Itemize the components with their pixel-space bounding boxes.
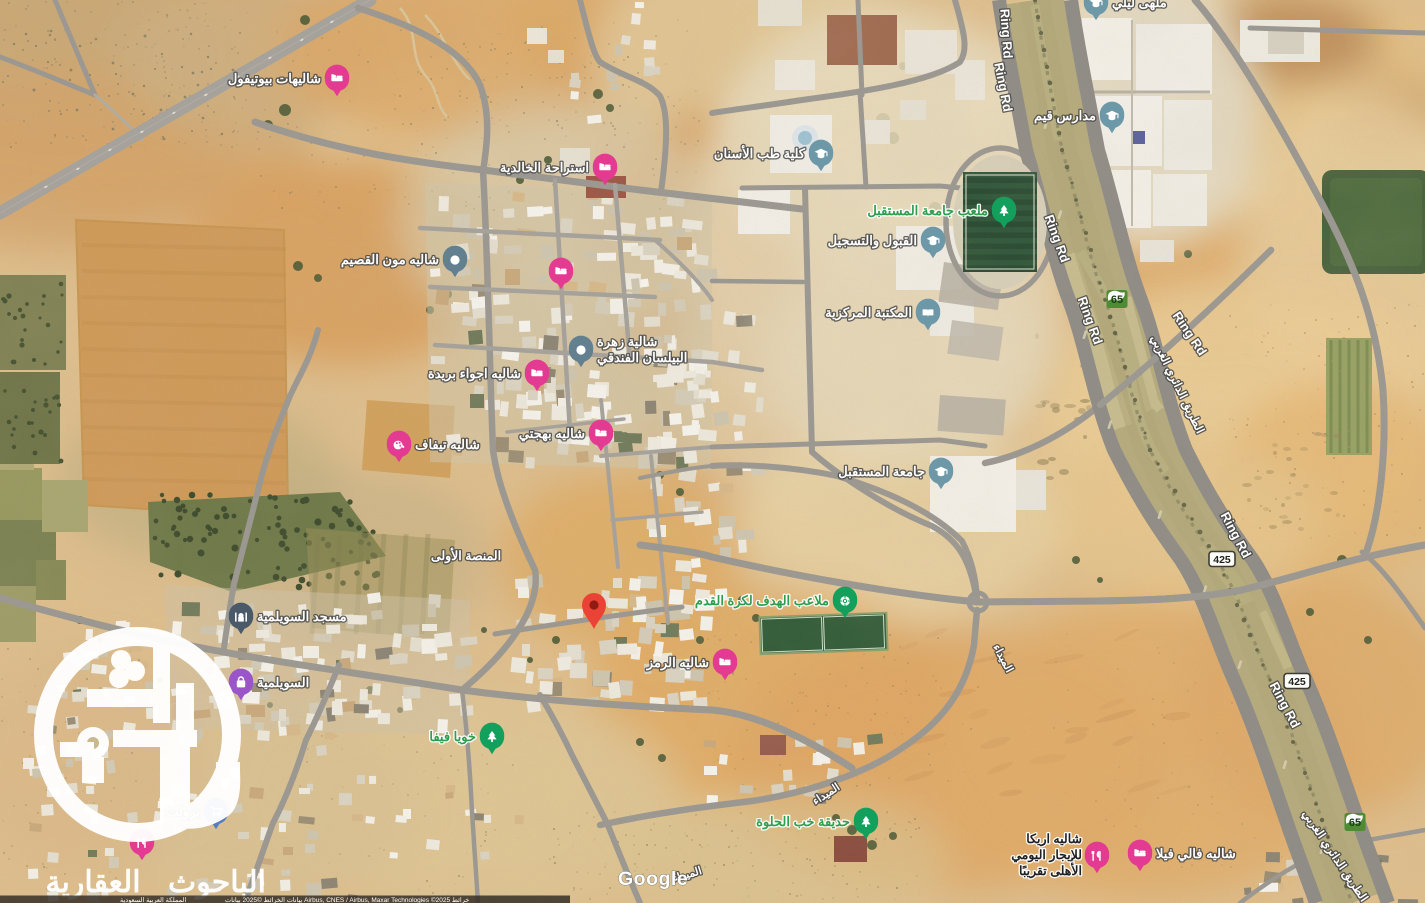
svg-text:شاليه اجواء بريدة: شاليه اجواء بريدة — [428, 366, 521, 382]
svg-text:ملهى ليلي: ملهى ليلي — [1112, 0, 1167, 11]
svg-text:كلية طب الأسنان: كلية طب الأسنان — [714, 145, 806, 161]
svg-text:شالية زهرة: شالية زهرة — [597, 334, 658, 350]
svg-text:العقارية: العقارية — [45, 866, 140, 900]
svg-text:شاليه بهجتي: شاليه بهجتي — [519, 426, 585, 442]
svg-text:الباحوث: الباحوث — [168, 866, 266, 900]
svg-text:للإيجار اليومي: للإيجار اليومي — [1011, 848, 1082, 863]
svg-text:شاليه اريكا: شاليه اريكا — [1026, 832, 1082, 847]
svg-text:شاليه مون القصيم: شاليه مون القصيم — [341, 252, 439, 268]
svg-text:مدارس قيم: مدارس قيم — [1034, 108, 1096, 124]
svg-text:المنصة الأولى: المنصة الأولى — [431, 547, 501, 564]
svg-text:شاليه فالي فيلا: شاليه فالي فيلا — [1156, 846, 1236, 862]
svg-text:جامعة المستقبل: جامعة المستقبل — [838, 464, 925, 479]
svg-text:البيلسان الفندقي: البيلسان الفندقي — [597, 350, 687, 366]
svg-text:65: 65 — [1349, 817, 1361, 829]
svg-text:ملاعب الهدف لكرة القدم: ملاعب الهدف لكرة القدم — [695, 593, 829, 609]
svg-text:شاليهات بيوتيفول: شاليهات بيوتيفول — [228, 71, 321, 87]
svg-text:الأهلى تقريبًا: الأهلى تقريبًا — [1019, 862, 1082, 879]
svg-text:شاليه تيفاف: شاليه تيفاف — [415, 437, 480, 452]
svg-text:القبول والتسجيل: القبول والتسجيل — [828, 233, 917, 249]
svg-text:Google: Google — [618, 868, 688, 890]
svg-text:ملعب جامعة المستقبل: ملعب جامعة المستقبل — [867, 203, 988, 218]
svg-text:السويلمية: السويلمية — [257, 675, 309, 691]
svg-text:حديقة خب الحلوة: حديقة خب الحلوة — [756, 814, 850, 830]
svg-text:65: 65 — [1111, 294, 1123, 306]
svg-text:المملكة العربية السعودية: المملكة العربية السعودية — [120, 896, 186, 903]
svg-text:شاليه الرمز: شاليه الرمز — [646, 655, 709, 671]
svg-text:425: 425 — [1213, 554, 1231, 566]
svg-text:425: 425 — [1288, 676, 1306, 688]
svg-text:المكتبة المركزية: المكتبة المركزية — [825, 305, 912, 321]
svg-text:خويا فيفا: خويا فيفا — [429, 729, 476, 745]
svg-text:مسجد السويلمية: مسجد السويلمية — [257, 609, 347, 625]
svg-text:بيانات الخرائط ©2025 بيانات Ai: بيانات الخرائط ©2025 بيانات Airbus, CNES… — [225, 896, 469, 903]
svg-text:استراحة الخالدية: استراحة الخالدية — [500, 160, 589, 176]
